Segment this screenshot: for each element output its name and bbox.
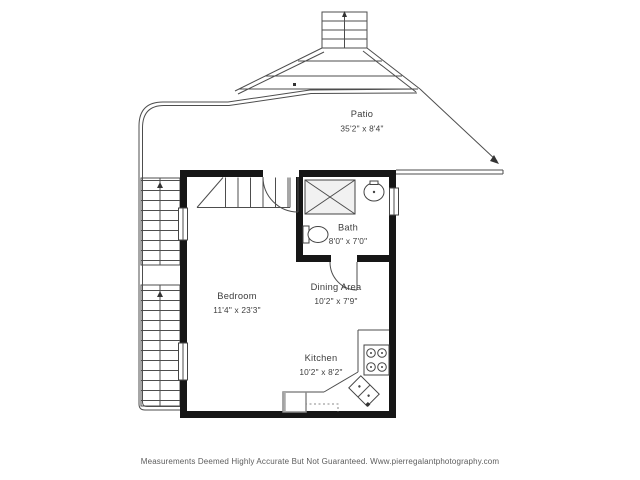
- room-label-dining: Dining Area: [311, 282, 362, 292]
- room-label-bath: Bath: [338, 223, 358, 233]
- disclaimer-text: Measurements Deemed Highly Accurate But …: [141, 457, 500, 466]
- bedroom-window-upper: [179, 208, 188, 240]
- floor-plan-page: Patio 35'2" x 8'4" Bath 8'0" x 7'0" Bedr…: [0, 0, 640, 480]
- room-dims-bath: 8'0" x 7'0": [329, 236, 367, 246]
- room-label-patio: Patio: [351, 109, 373, 119]
- exterior-stairs: [141, 178, 180, 406]
- top-deck-stairs: [322, 11, 367, 48]
- floor-plan-svg: Patio 35'2" x 8'4" Bath 8'0" x 7'0" Bedr…: [0, 0, 640, 480]
- marker-dot: [293, 83, 296, 86]
- toilet-icon: [303, 226, 328, 243]
- dishwasher: [283, 392, 306, 412]
- room-label-bedroom: Bedroom: [217, 291, 256, 301]
- stove-icon: [364, 345, 389, 375]
- kitchen-sink-icon: [349, 376, 380, 407]
- bedroom-window-lower: [179, 343, 188, 380]
- room-dims-kitchen: 10'2" x 8'2": [299, 367, 342, 377]
- room-dims-dining: 10'2" x 7'9": [314, 296, 357, 306]
- bath-window: [390, 188, 399, 215]
- patio-railings: [235, 48, 499, 164]
- interior-stairs: [197, 178, 290, 208]
- dishwasher-dashed-outline: [305, 404, 338, 412]
- room-dims-patio: 35'2" x 8'4": [340, 124, 383, 134]
- room-dims-bedroom: 11'4" x 23'3": [213, 305, 261, 315]
- shower: [305, 180, 355, 214]
- room-label-kitchen: Kitchen: [305, 353, 338, 363]
- bathroom-sink-icon: [364, 181, 384, 201]
